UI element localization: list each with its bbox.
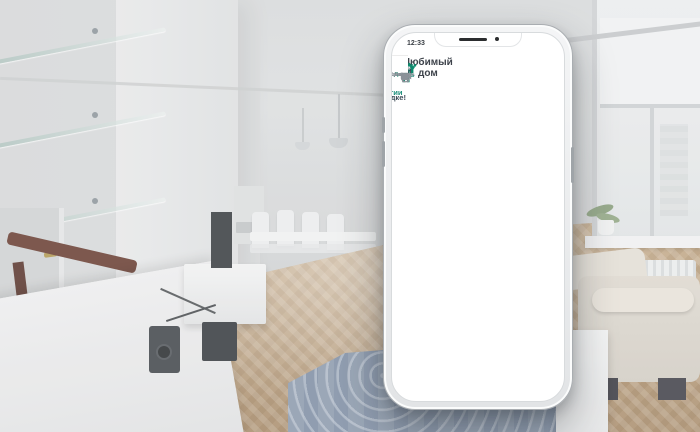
- volume-button: [382, 141, 385, 167]
- tab-bar: Дом Устройства Сценарии: [392, 55, 408, 91]
- phone-screen: 12:33 Любимый дом: [391, 32, 565, 402]
- white-overlay-veil: [0, 0, 700, 432]
- smartphone-mockup: 12:33 Любимый дом: [383, 24, 573, 410]
- tab-more-label: Еще: [394, 72, 405, 78]
- screenshot-root: 12:33 Любимый дом: [0, 0, 700, 432]
- power-button: [571, 147, 574, 183]
- smart-home-app: Любимый дом: [392, 33, 564, 401]
- mute-switch: [382, 117, 385, 133]
